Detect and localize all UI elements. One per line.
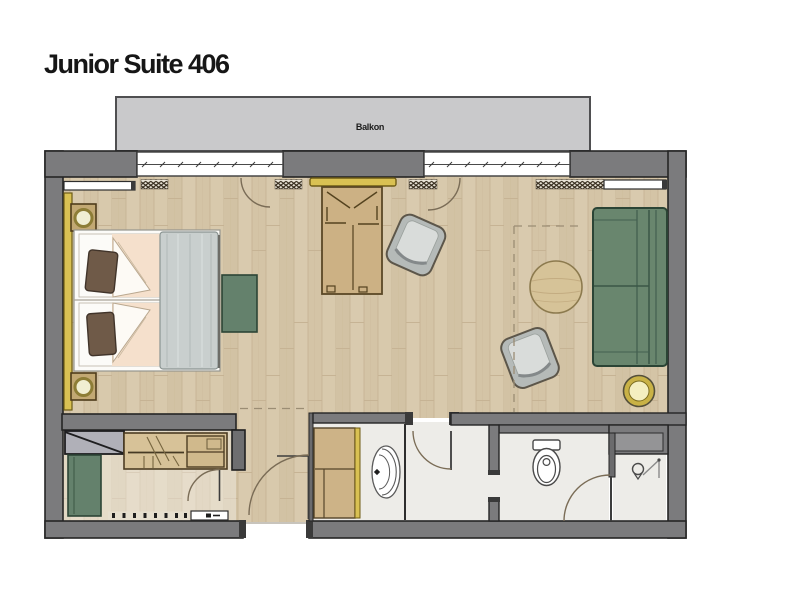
svg-text:Junior Suite 406: Junior Suite 406 — [44, 49, 230, 79]
svg-text:Balkon: Balkon — [356, 122, 384, 132]
